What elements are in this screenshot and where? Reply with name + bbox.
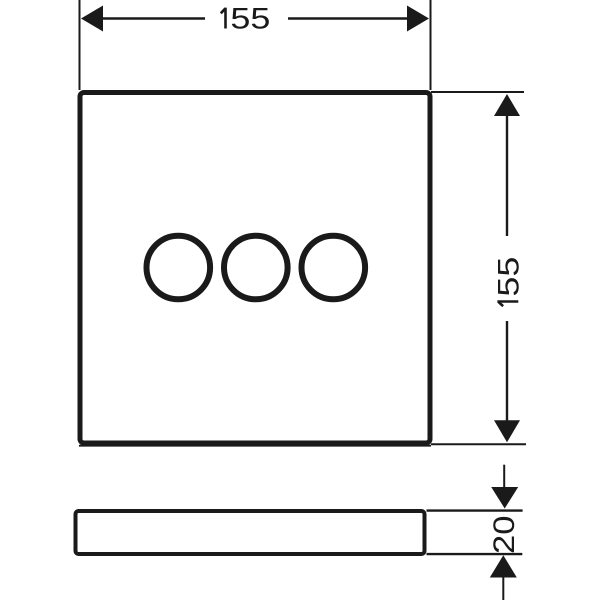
svg-text:20: 20 — [488, 516, 521, 555]
